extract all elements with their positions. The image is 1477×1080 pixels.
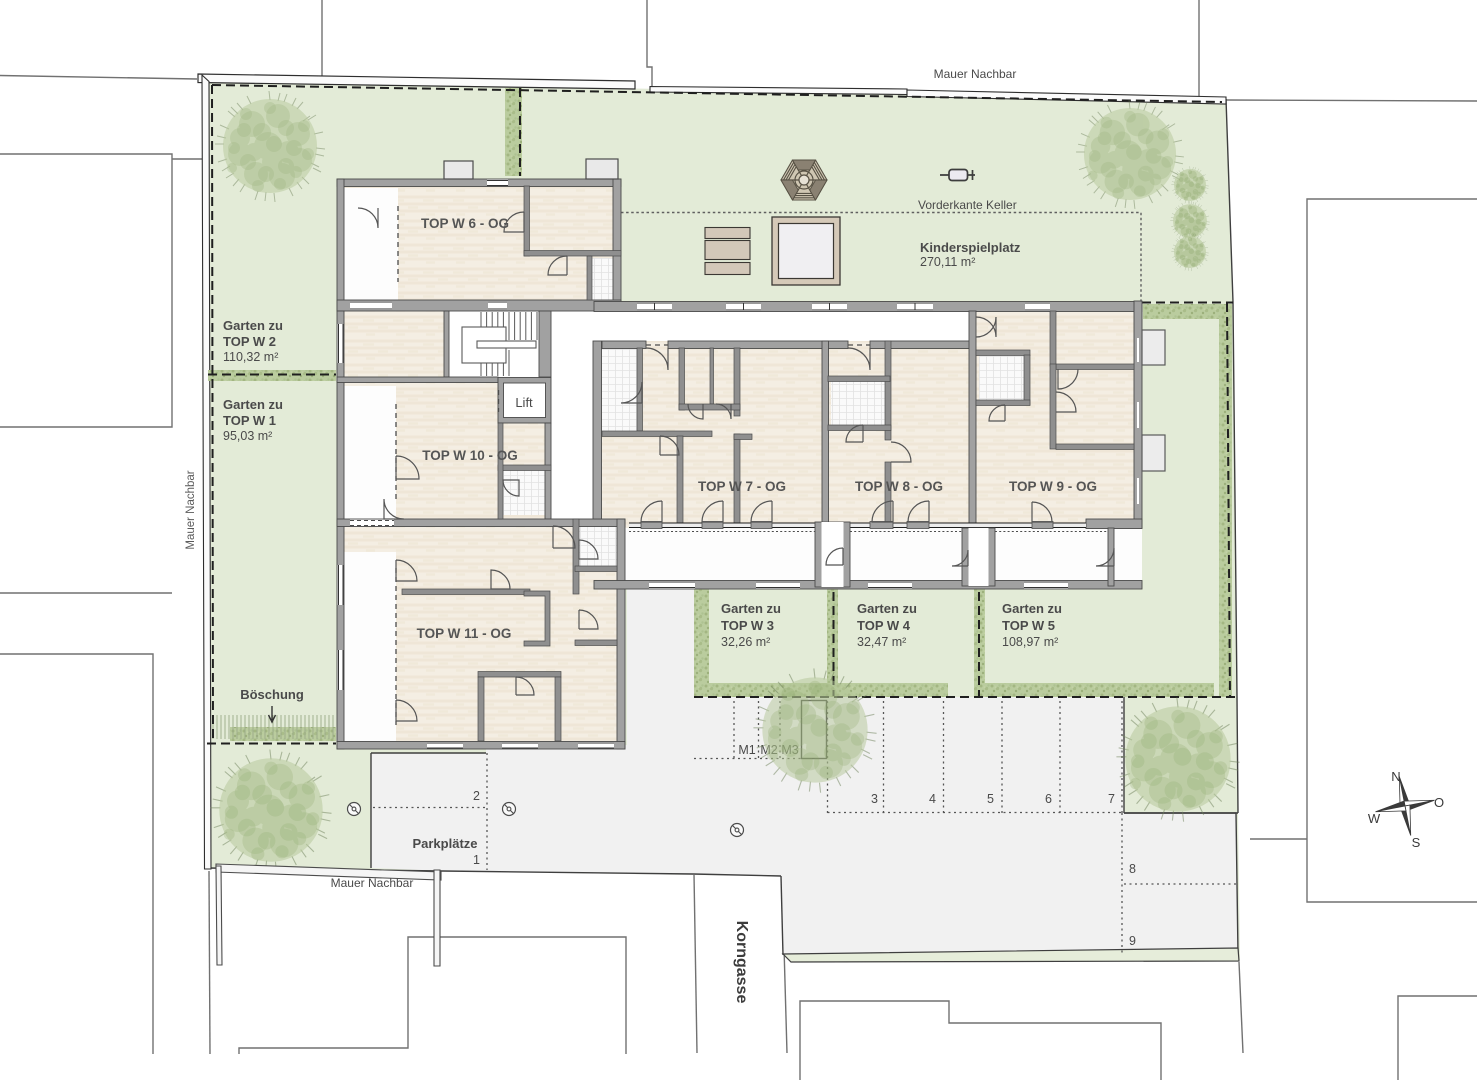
- svg-text:TOP W 6 - OG: TOP W 6 - OG: [421, 216, 509, 231]
- svg-text:Mauer Nachbar: Mauer Nachbar: [185, 470, 197, 549]
- svg-text:N: N: [1391, 769, 1400, 784]
- svg-text:Parkplätze: Parkplätze: [412, 836, 477, 851]
- svg-text:O: O: [1434, 795, 1444, 810]
- svg-text:TOP W 8 - OG: TOP W 8 - OG: [855, 479, 943, 494]
- svg-text:32,47 m²: 32,47 m²: [857, 635, 906, 649]
- svg-text:2: 2: [473, 789, 480, 803]
- svg-text:Garten zu: Garten zu: [1002, 601, 1062, 616]
- svg-text:Garten zu: Garten zu: [223, 397, 283, 412]
- svg-text:W: W: [1368, 811, 1381, 826]
- svg-text:5: 5: [987, 792, 994, 806]
- svg-text:TOP W 2: TOP W 2: [223, 334, 276, 349]
- svg-text:Kinderspielplatz: Kinderspielplatz: [920, 240, 1021, 255]
- svg-text:TOP W 1: TOP W 1: [223, 413, 276, 428]
- svg-text:Mauer Nachbar: Mauer Nachbar: [934, 67, 1017, 81]
- svg-text:TOP W 9 - OG: TOP W 9 - OG: [1009, 479, 1097, 494]
- svg-text:TOP W 4: TOP W 4: [857, 618, 911, 633]
- svg-text:32,26 m²: 32,26 m²: [721, 635, 770, 649]
- svg-text:Vorderkante Keller: Vorderkante Keller: [918, 198, 1017, 212]
- svg-text:110,32 m²: 110,32 m²: [223, 350, 278, 364]
- svg-text:6: 6: [1045, 792, 1052, 806]
- svg-text:TOP W 10 - OG: TOP W 10 - OG: [422, 448, 518, 463]
- svg-text:Korngasse: Korngasse: [733, 921, 750, 1004]
- svg-text:Garten zu: Garten zu: [721, 601, 781, 616]
- svg-text:Garten zu: Garten zu: [223, 318, 283, 333]
- svg-text:4: 4: [929, 792, 936, 806]
- svg-text:S: S: [1412, 835, 1421, 850]
- svg-text:270,11 m²: 270,11 m²: [920, 255, 975, 269]
- svg-text:Böschung: Böschung: [240, 687, 304, 702]
- svg-text:TOP W 5: TOP W 5: [1002, 618, 1055, 633]
- svg-text:TOP W 7 - OG: TOP W 7 - OG: [698, 479, 786, 494]
- svg-text:9: 9: [1129, 934, 1136, 948]
- svg-text:M1: M1: [738, 743, 755, 757]
- svg-text:8: 8: [1129, 862, 1136, 876]
- svg-text:95,03 m²: 95,03 m²: [223, 429, 272, 443]
- svg-text:Lift: Lift: [515, 395, 533, 410]
- svg-text:108,97 m²: 108,97 m²: [1002, 635, 1058, 649]
- svg-text:3: 3: [871, 792, 878, 806]
- svg-text:1: 1: [473, 853, 480, 867]
- svg-text:Garten zu: Garten zu: [857, 601, 917, 616]
- svg-text:7: 7: [1108, 792, 1115, 806]
- svg-text:TOP W 3: TOP W 3: [721, 618, 774, 633]
- svg-text:TOP W 11 - OG: TOP W 11 - OG: [417, 626, 512, 641]
